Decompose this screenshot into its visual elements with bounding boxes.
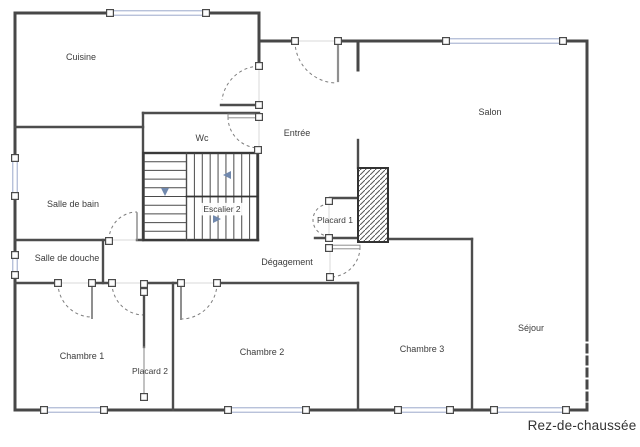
window — [494, 408, 566, 412]
opening-end-marker — [326, 245, 333, 252]
window — [13, 158, 17, 196]
window — [228, 408, 306, 412]
door-swing-arc — [222, 66, 259, 100]
opening-end-marker — [12, 155, 19, 162]
opening-end-marker — [443, 38, 450, 45]
opening-end-marker — [303, 407, 310, 414]
room-label-chambre-3: Chambre 3 — [400, 344, 445, 354]
opening-end-marker — [326, 198, 333, 205]
hatched-column — [358, 168, 388, 242]
room-label-escalier-2: Escalier 2 — [203, 204, 241, 214]
opening-end-marker — [327, 274, 334, 281]
door-swing-arc — [295, 41, 337, 83]
opening-end-marker — [55, 280, 62, 287]
door-swing-arc — [109, 212, 137, 240]
room-label-cuisine: Cuisine — [66, 52, 96, 62]
room-label-sejour: Séjour — [518, 323, 544, 333]
opening-end-marker — [395, 407, 402, 414]
room-label-salle-de-douche: Salle de douche — [35, 253, 100, 263]
opening-end-marker — [178, 280, 185, 287]
opening-end-marker — [256, 114, 263, 121]
opening-end-marker — [292, 38, 299, 45]
door-leaf-double — [331, 245, 360, 249]
opening-end-marker — [491, 407, 498, 414]
opening-end-marker — [12, 252, 19, 259]
opening-end-marker — [335, 38, 342, 45]
opening-end-marker — [225, 407, 232, 414]
floor-plan-drawing: CuisineWcEntréeSalonSalle de bainEscalie… — [0, 0, 640, 447]
door-swing-arc — [330, 247, 360, 277]
room-label-chambre-2: Chambre 2 — [240, 347, 285, 357]
opening-end-marker — [141, 281, 148, 288]
opening-end-marker — [109, 280, 116, 287]
opening-end-marker — [12, 272, 19, 279]
room-label-salon: Salon — [478, 107, 501, 117]
opening-end-marker — [203, 10, 210, 17]
room-label-entree: Entrée — [284, 128, 311, 138]
window — [110, 11, 206, 15]
window — [44, 408, 104, 412]
door-swing-arc — [112, 283, 144, 315]
room-label-salle-de-bain: Salle de bain — [47, 199, 99, 209]
opening-end-marker — [141, 289, 148, 296]
opening-end-marker — [89, 280, 96, 287]
door-swing-arc — [228, 117, 259, 148]
room-label-wc: Wc — [196, 133, 209, 143]
door-swing-arc — [58, 283, 92, 317]
window — [446, 39, 563, 43]
opening-end-marker — [255, 147, 262, 154]
door-leaf-double — [228, 114, 259, 118]
opening-end-marker — [563, 407, 570, 414]
floor-plan: CuisineWcEntréeSalonSalle de bainEscalie… — [0, 0, 640, 447]
opening-end-marker — [326, 235, 333, 242]
floor-label: Rez-de-chaussée — [524, 418, 640, 433]
opening-end-marker — [560, 38, 567, 45]
door-swing-arc — [181, 283, 217, 319]
window — [398, 408, 450, 412]
opening-end-marker — [447, 407, 454, 414]
room-label-chambre-1: Chambre 1 — [60, 351, 105, 361]
opening-end-marker — [101, 407, 108, 414]
opening-end-marker — [106, 238, 113, 245]
room-label-placard-2: Placard 2 — [132, 366, 168, 376]
opening-end-marker — [256, 102, 263, 109]
opening-end-marker — [214, 280, 221, 287]
opening-end-marker — [12, 193, 19, 200]
opening-end-marker — [256, 63, 263, 70]
room-label-degagement: Dégagement — [261, 257, 313, 267]
room-label-placard-1: Placard 1 — [317, 215, 353, 225]
opening-end-marker — [141, 394, 148, 401]
opening-end-marker — [41, 407, 48, 414]
opening-end-marker — [107, 10, 114, 17]
